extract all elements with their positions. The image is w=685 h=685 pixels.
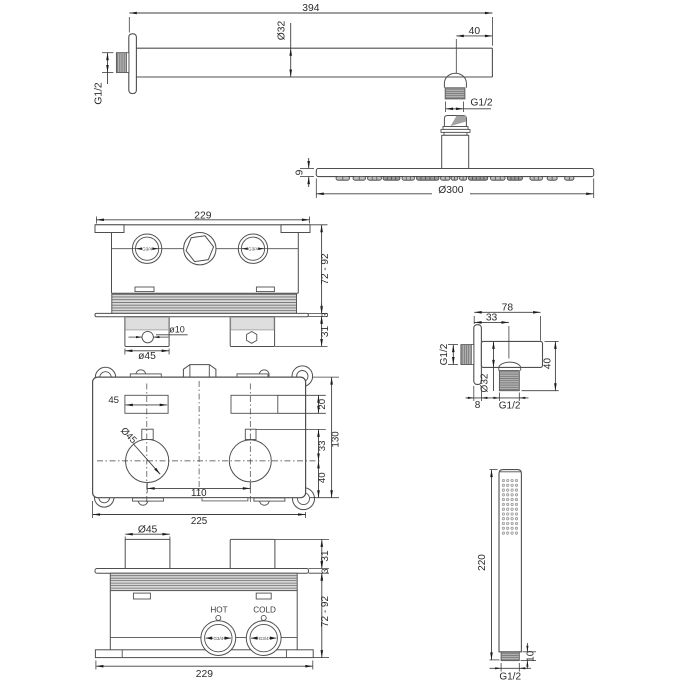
- svg-text:10: 10: [525, 650, 536, 662]
- svg-text:40: 40: [469, 26, 481, 37]
- svg-text:8: 8: [475, 400, 481, 411]
- svg-text:G1/2: G1/2: [470, 98, 493, 109]
- svg-text:G3/4: G3/4: [259, 636, 269, 641]
- svg-text:20: 20: [317, 399, 328, 410]
- svg-text:G1/2: G1/2: [439, 343, 450, 365]
- svg-text:COLD: COLD: [253, 606, 276, 615]
- svg-text:Ø45: Ø45: [138, 525, 158, 536]
- svg-text:229: 229: [194, 210, 211, 221]
- svg-text:G3/4: G3/4: [213, 636, 223, 641]
- svg-text:ø45: ø45: [138, 351, 156, 362]
- svg-text:G1/2: G1/2: [499, 672, 521, 683]
- svg-text:78: 78: [502, 303, 514, 314]
- svg-text:72 - 92: 72 - 92: [320, 595, 331, 627]
- svg-text:G1/2: G1/2: [499, 400, 521, 411]
- svg-text:40: 40: [542, 358, 553, 370]
- svg-text:45: 45: [108, 395, 119, 406]
- svg-text:394: 394: [302, 3, 319, 14]
- svg-text:9: 9: [294, 169, 305, 175]
- svg-text:72 - 92: 72 - 92: [320, 253, 331, 285]
- svg-text:229: 229: [196, 669, 213, 680]
- svg-text:ø10: ø10: [169, 325, 185, 335]
- svg-text:130: 130: [330, 431, 341, 448]
- svg-text:33: 33: [317, 441, 328, 452]
- svg-text:3: 3: [320, 568, 330, 573]
- svg-text:G3/4: G3/4: [248, 247, 258, 252]
- svg-text:G3/4: G3/4: [142, 247, 152, 252]
- svg-text:110: 110: [191, 488, 207, 499]
- svg-text:HOT: HOT: [210, 606, 227, 615]
- svg-text:40: 40: [317, 472, 328, 483]
- svg-text:225: 225: [191, 516, 208, 527]
- svg-text:31: 31: [320, 550, 331, 562]
- svg-text:G1/2: G1/2: [94, 82, 105, 105]
- svg-text:Ø32: Ø32: [277, 20, 288, 40]
- svg-text:220: 220: [477, 554, 488, 571]
- svg-text:31: 31: [320, 326, 331, 338]
- svg-text:33: 33: [486, 313, 498, 324]
- svg-text:Ø300: Ø300: [438, 185, 463, 196]
